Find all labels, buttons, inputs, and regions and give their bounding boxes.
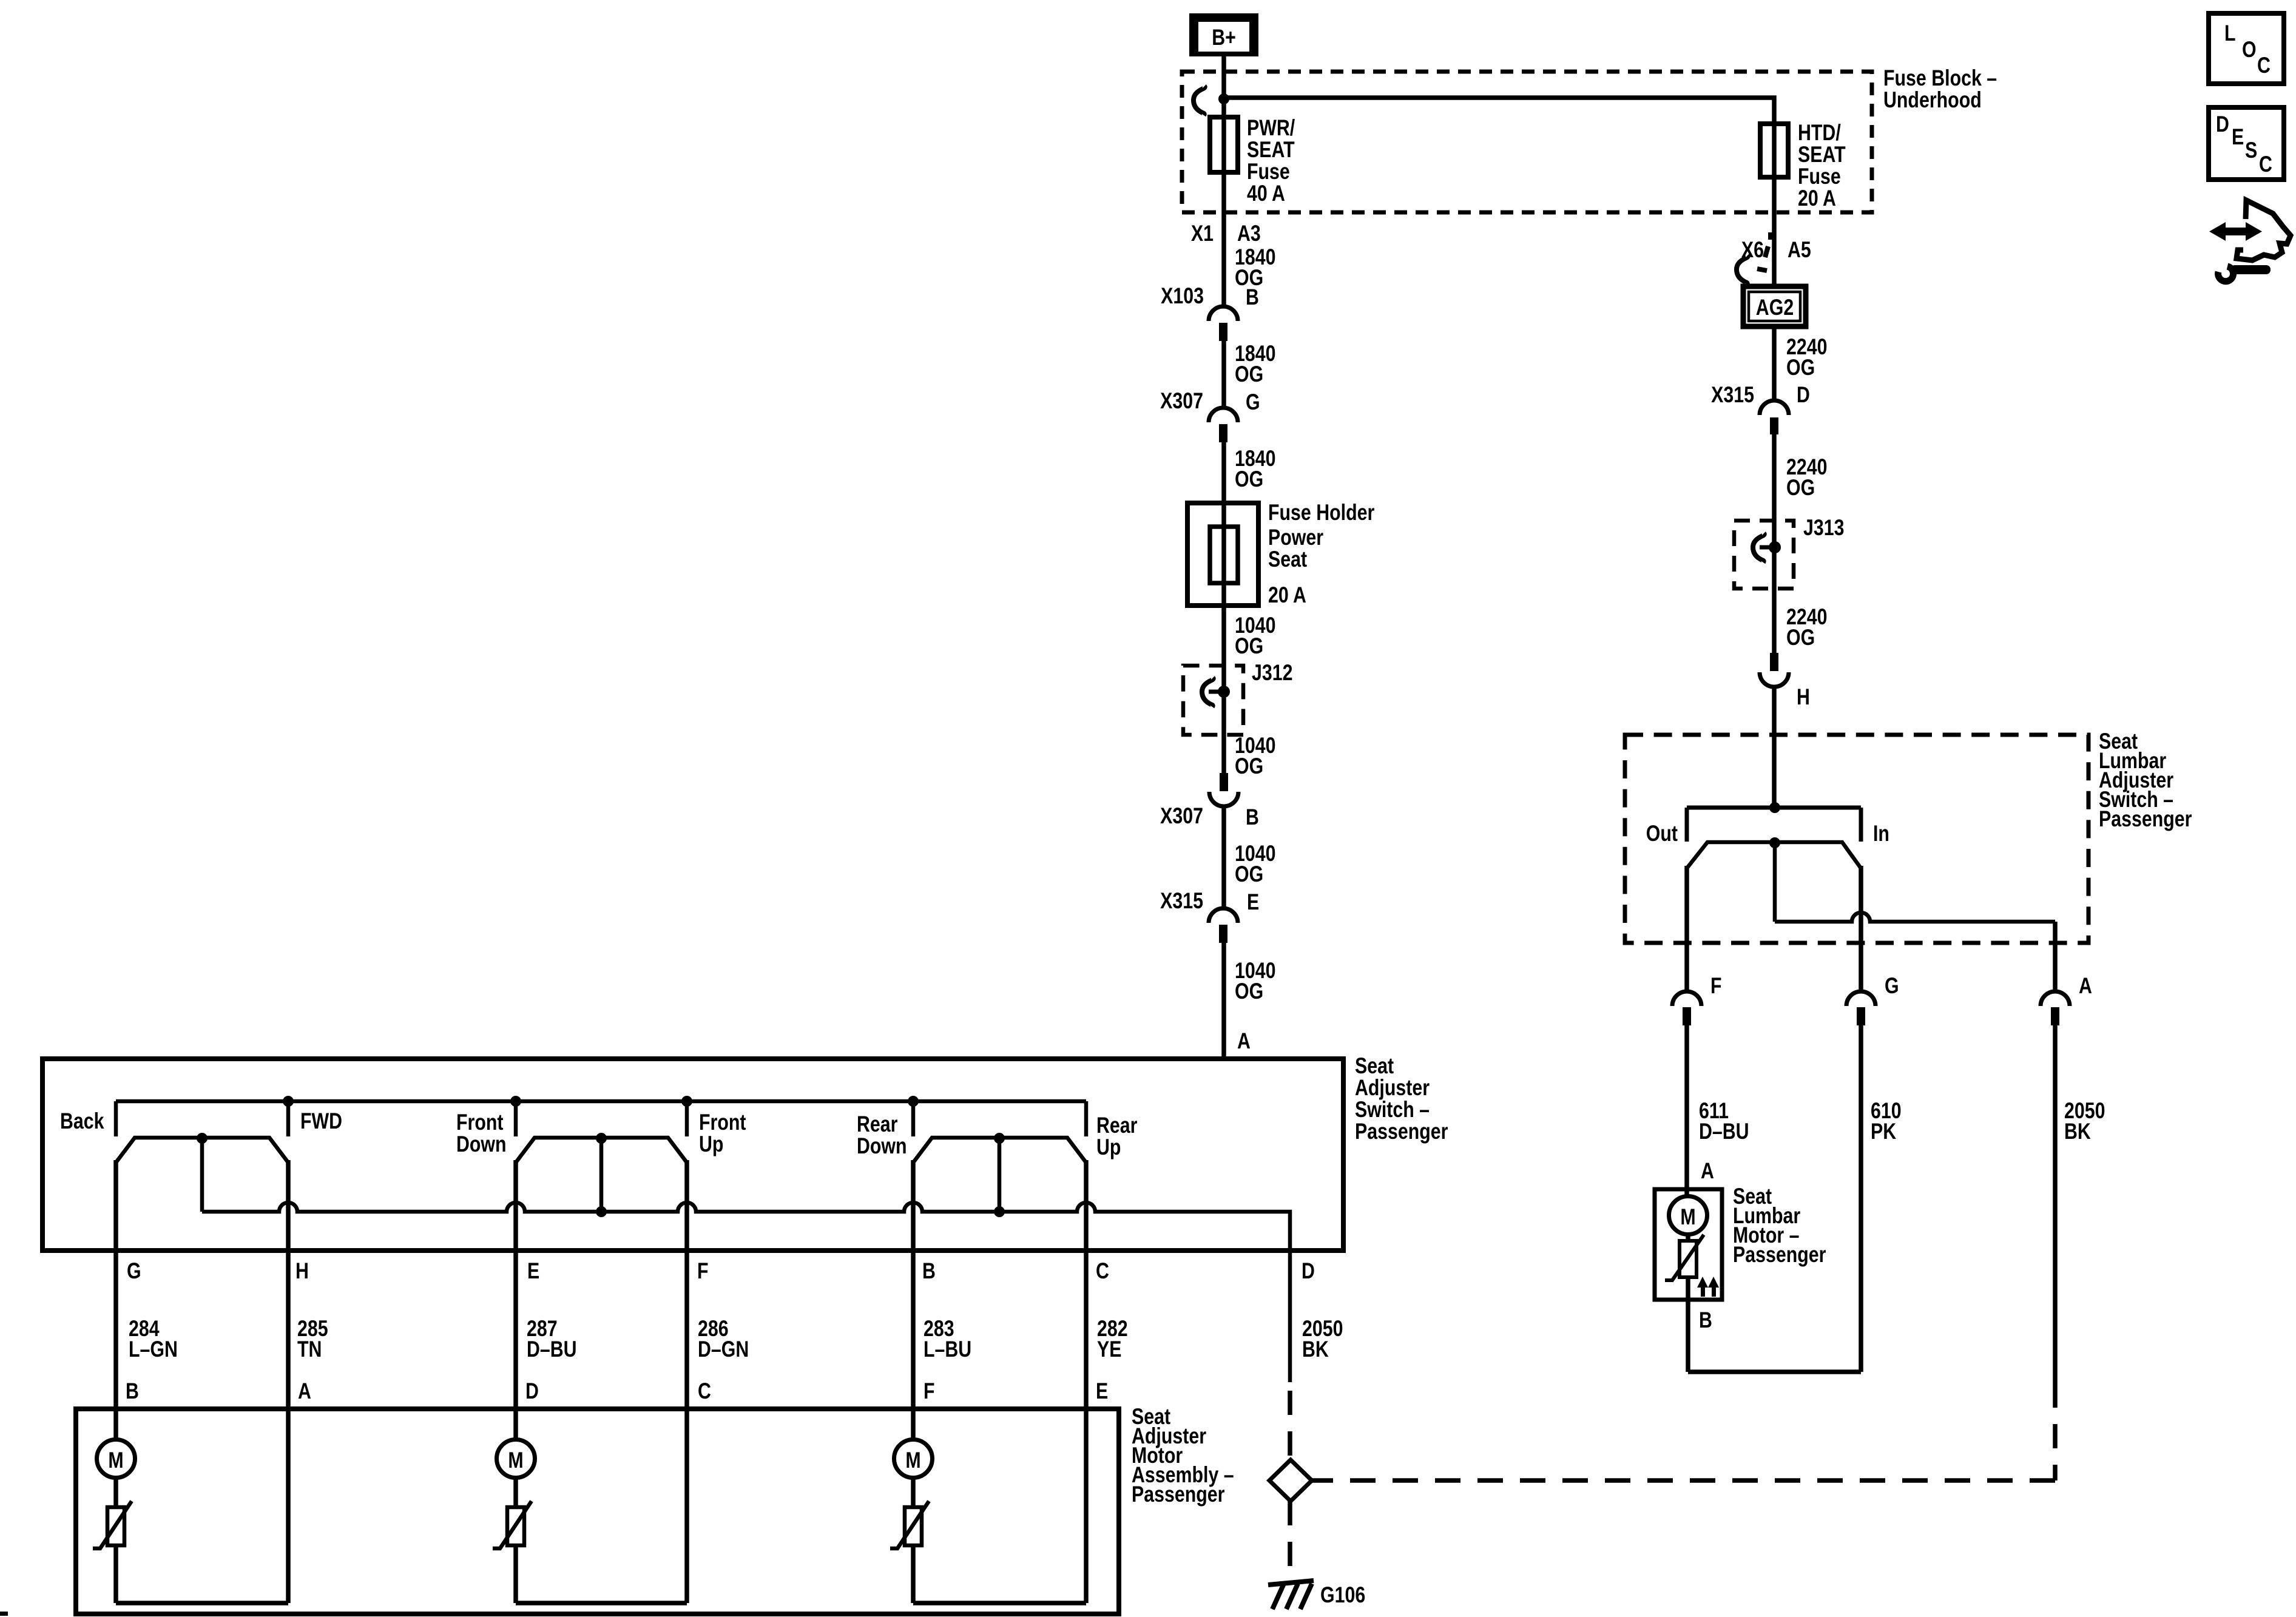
svg-text:L–BU: L–BU <box>923 1337 971 1362</box>
svg-text:20 A: 20 A <box>1268 582 1306 608</box>
svg-text:H: H <box>1797 684 1810 710</box>
svg-text:F: F <box>1710 973 1722 999</box>
svg-text:D–BU: D–BU <box>1699 1119 1749 1144</box>
svg-text:AG2: AG2 <box>1756 295 1794 320</box>
svg-text:Fuse Holder: Fuse Holder <box>1268 500 1374 525</box>
svg-text:X307: X307 <box>1160 803 1203 829</box>
svg-text:M: M <box>1680 1204 1695 1230</box>
svg-text:M: M <box>508 1448 523 1473</box>
svg-text:D: D <box>2216 112 2229 137</box>
svg-text:B: B <box>1246 805 1259 830</box>
svg-text:In: In <box>1873 821 1889 846</box>
svg-text:F: F <box>697 1258 709 1284</box>
svg-text:B: B <box>1699 1308 1712 1333</box>
svg-text:OG: OG <box>1235 467 1263 492</box>
svg-text:X307: X307 <box>1160 388 1203 414</box>
svg-text:Passenger: Passenger <box>1355 1119 1448 1144</box>
svg-text:Passenger: Passenger <box>2099 806 2192 832</box>
svg-text:D: D <box>1797 382 1810 408</box>
svg-text:G: G <box>1246 390 1260 415</box>
svg-text:H: H <box>295 1258 309 1284</box>
svg-text:OG: OG <box>1786 475 1815 501</box>
svg-text:FWD: FWD <box>300 1109 342 1134</box>
svg-text:G: G <box>1885 973 1899 999</box>
svg-text:L–GN: L–GN <box>129 1337 178 1362</box>
svg-text:PK: PK <box>1871 1119 1897 1144</box>
svg-text:Down: Down <box>857 1133 907 1159</box>
svg-text:OG: OG <box>1786 625 1815 650</box>
svg-text:M: M <box>905 1448 920 1473</box>
svg-text:20 A: 20 A <box>1798 186 1836 211</box>
svg-text:X315: X315 <box>1711 382 1754 408</box>
svg-text:D–BU: D–BU <box>527 1337 577 1362</box>
svg-text:X103: X103 <box>1161 283 1204 309</box>
svg-text:BK: BK <box>1302 1337 1329 1362</box>
svg-text:S: S <box>2245 138 2257 163</box>
svg-text:C: C <box>1096 1258 1109 1284</box>
svg-text:O: O <box>2242 37 2257 62</box>
svg-text:Out: Out <box>1646 821 1678 846</box>
svg-text:L: L <box>2224 21 2236 46</box>
svg-text:A5: A5 <box>1788 237 1811 263</box>
svg-text:M: M <box>108 1448 123 1473</box>
svg-text:OG: OG <box>1235 754 1263 779</box>
svg-text:OG: OG <box>1235 979 1263 1004</box>
svg-text:E: E <box>527 1258 539 1284</box>
svg-text:OG: OG <box>1235 633 1263 659</box>
svg-text:F: F <box>923 1379 935 1404</box>
svg-text:J313: J313 <box>1803 515 1844 541</box>
svg-text:E: E <box>2232 124 2244 150</box>
svg-text:A: A <box>1237 1028 1251 1054</box>
svg-text:J312: J312 <box>1252 660 1292 686</box>
svg-text:OG: OG <box>1235 362 1263 387</box>
svg-text:40 A: 40 A <box>1247 181 1285 206</box>
svg-text:D–GN: D–GN <box>698 1337 749 1362</box>
svg-text:C: C <box>2257 53 2271 78</box>
svg-text:B+: B+ <box>1212 25 1236 50</box>
svg-text:X1: X1 <box>1191 221 1214 246</box>
svg-text:Underhood: Underhood <box>1883 87 1982 113</box>
svg-text:OG: OG <box>1235 862 1263 887</box>
svg-text:G: G <box>127 1258 141 1284</box>
svg-text:D: D <box>1302 1258 1315 1284</box>
svg-text:Down: Down <box>456 1132 507 1157</box>
svg-text:G106: G106 <box>1320 1582 1365 1608</box>
svg-text:BK: BK <box>2064 1119 2091 1144</box>
svg-text:C: C <box>2259 152 2272 177</box>
svg-text:A: A <box>298 1379 311 1404</box>
svg-text:OG: OG <box>1786 355 1815 380</box>
svg-text:Seat: Seat <box>1268 547 1307 572</box>
svg-text:Back: Back <box>60 1109 104 1134</box>
svg-text:B: B <box>922 1258 936 1284</box>
svg-text:E: E <box>1096 1379 1108 1404</box>
svg-text:Passenger: Passenger <box>1733 1242 1826 1268</box>
svg-text:C: C <box>698 1379 711 1404</box>
svg-text:D: D <box>525 1379 539 1404</box>
svg-text:TN: TN <box>297 1337 322 1362</box>
svg-text:Up: Up <box>699 1132 723 1157</box>
svg-text:Up: Up <box>1096 1135 1121 1160</box>
svg-text:A: A <box>2079 973 2092 999</box>
svg-text:Passenger: Passenger <box>1132 1482 1224 1507</box>
svg-text:A3: A3 <box>1237 221 1261 246</box>
svg-text:YE: YE <box>1097 1337 1121 1362</box>
svg-text:A: A <box>1701 1158 1714 1184</box>
svg-text:B: B <box>1246 285 1259 310</box>
svg-text:X315: X315 <box>1160 888 1203 914</box>
svg-text:E: E <box>1247 890 1259 915</box>
svg-text:B: B <box>126 1379 139 1404</box>
